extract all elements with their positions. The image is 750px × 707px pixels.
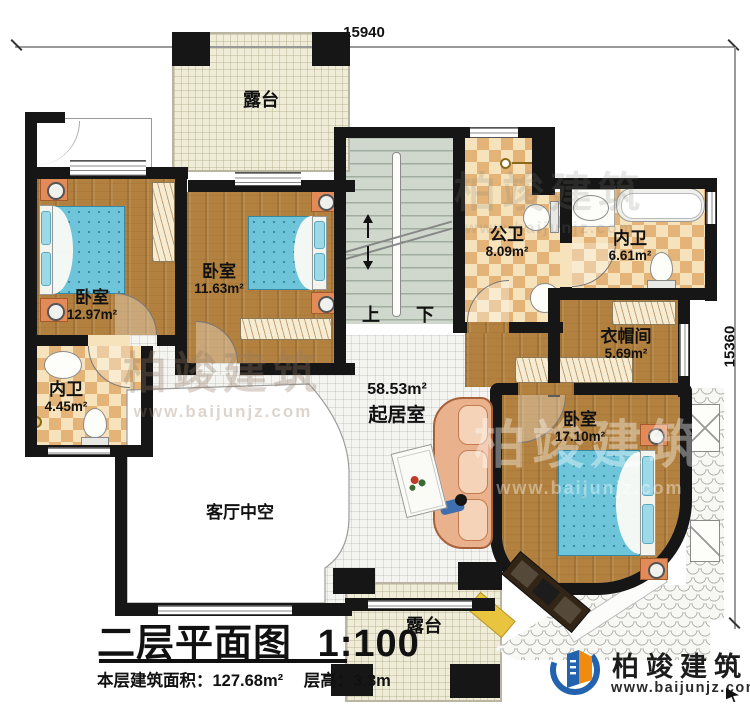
arrow-shaft (367, 222, 369, 238)
nightstand (40, 298, 68, 322)
window (679, 324, 689, 376)
pillar (450, 664, 500, 698)
pillar (172, 32, 210, 66)
closet-rack (612, 301, 676, 325)
door-gap (88, 335, 130, 346)
room-label-bedroom-left: 卧室 12.97m² (67, 288, 117, 322)
roof-window-panel (690, 404, 720, 452)
pillar (458, 562, 502, 590)
toilet (650, 252, 673, 282)
floor-height-label: 层高： (304, 672, 354, 690)
toilet-tank (550, 201, 559, 233)
sink (44, 351, 82, 379)
wall (25, 112, 65, 123)
towel-bar (512, 162, 532, 164)
roof-window-panel (690, 520, 720, 562)
wall (115, 457, 127, 615)
room-label-living-area: 58.53m² 起居室 (367, 381, 427, 426)
wall (334, 135, 346, 375)
company-name: 柏竣建筑 (612, 645, 748, 684)
right-dimension-label: 15360 (722, 317, 739, 377)
down-arrow-icon (363, 261, 373, 270)
pillow (314, 221, 325, 249)
pillow (41, 252, 51, 286)
nightstand (640, 558, 668, 580)
wall (141, 346, 153, 457)
pillow (41, 211, 51, 245)
sink (573, 195, 609, 221)
room-label-terrace-top: 露台 (243, 90, 279, 110)
floor-area-value: 127.68m² (213, 672, 284, 690)
door-gap (560, 243, 572, 287)
towel-ring (500, 158, 511, 169)
window (70, 160, 146, 176)
title-underline (99, 659, 347, 663)
window (706, 192, 716, 224)
top-dimension-line (15, 46, 735, 48)
wardrobe (152, 182, 175, 262)
wall (548, 288, 717, 300)
door-gap (518, 383, 574, 395)
company-logo-icon (545, 638, 605, 698)
nightstand (640, 424, 668, 446)
plan-subtitle: 本层建筑面积：127.68m² 层高：3.3m (97, 667, 391, 691)
wardrobe (240, 318, 332, 340)
wall (453, 135, 465, 325)
stairs-down-label: 下 (416, 301, 434, 327)
bathtub-basin (621, 193, 702, 219)
wall (532, 138, 555, 195)
room-label-void: 客厅中空 (206, 503, 274, 522)
nightstand (40, 177, 68, 201)
sofa-cushion (458, 405, 488, 445)
window (235, 172, 301, 186)
door-gap (467, 322, 509, 333)
arrow-shaft (367, 246, 369, 262)
window (48, 447, 110, 455)
floor-height-value: 3.3m (353, 672, 391, 690)
stairs-up-label: 上 (362, 301, 380, 327)
curtain-curve (37, 121, 80, 165)
bathtub (616, 188, 705, 222)
floor-area-label: 本层建筑面积： (97, 672, 213, 690)
wall (175, 179, 187, 375)
pillar (312, 32, 350, 66)
room-label-public-bathroom: 公卫 8.09m² (486, 225, 529, 259)
pillar (333, 568, 375, 594)
public-bathroom-upper-floor (465, 138, 532, 194)
room-label-bedroom-right: 卧室 17.10m² (555, 410, 605, 444)
floor-plan-canvas: 15940 15360 (0, 0, 750, 707)
pillow (314, 253, 325, 281)
person-head (455, 494, 467, 506)
room-label-ensuite-top-right: 内卫 6.61m² (609, 229, 652, 263)
dimension-tick (10, 39, 22, 51)
room-label-bedroom-middle: 卧室 11.63m² (194, 262, 244, 296)
wall (553, 178, 717, 189)
pillow (642, 456, 654, 496)
door-gap (196, 363, 240, 375)
window (470, 127, 518, 138)
room-label-ensuite-left: 内卫 4.45m² (45, 380, 88, 414)
window (368, 600, 472, 609)
wall (25, 179, 37, 457)
sofa-cushion (458, 450, 488, 494)
wall (334, 127, 555, 138)
room-label-cloakroom: 衣帽间 5.69m² (601, 327, 652, 361)
pillow (642, 504, 654, 544)
